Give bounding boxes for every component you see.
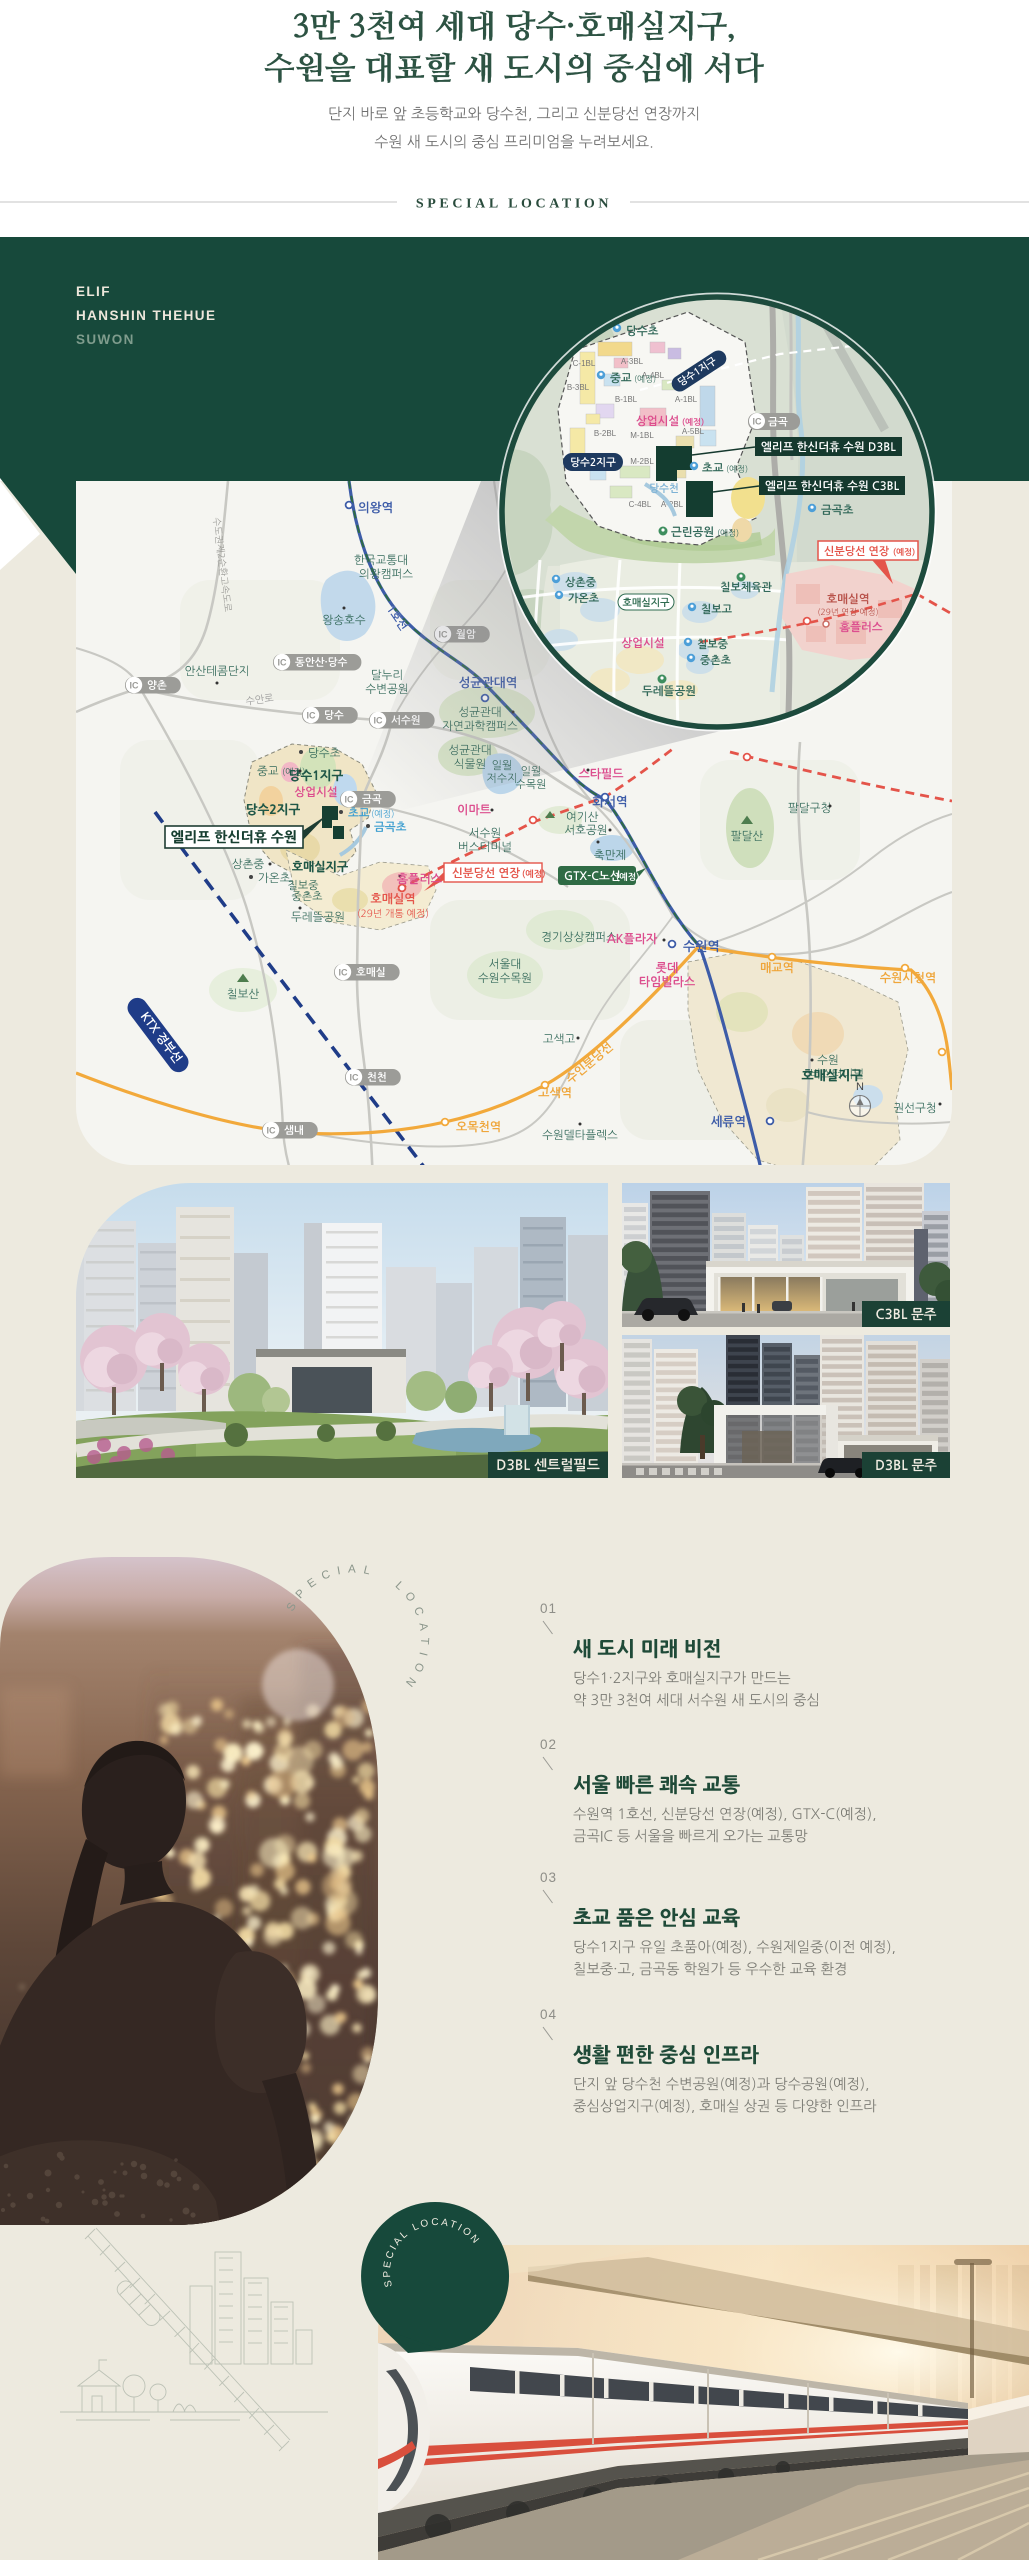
svg-text:A-4BL: A-4BL [642,371,665,380]
svg-text:A-3BL: A-3BL [621,357,644,366]
svg-text:IC: IC [753,417,763,427]
svg-text:C-1BL: C-1BL [573,359,596,368]
svg-text:01: 01 [540,1601,557,1616]
svg-text:02: 02 [540,1737,557,1752]
svg-text:A-5BL: A-5BL [682,427,705,436]
svg-text:M-1BL: M-1BL [630,431,654,440]
svg-text:04: 04 [540,2007,557,2022]
svg-text:C-4BL: C-4BL [629,500,652,509]
svg-text:B-3BL: B-3BL [567,383,590,392]
svg-text:03: 03 [540,1870,557,1885]
svg-text:A-1BL: A-1BL [675,395,698,404]
svg-text:SPECIAL LOCATION: SPECIAL LOCATION [285,1564,430,1695]
svg-text:B-1BL: B-1BL [615,395,638,404]
svg-text:B-2BL: B-2BL [594,429,617,438]
svg-text:M-2BL: M-2BL [630,457,654,466]
